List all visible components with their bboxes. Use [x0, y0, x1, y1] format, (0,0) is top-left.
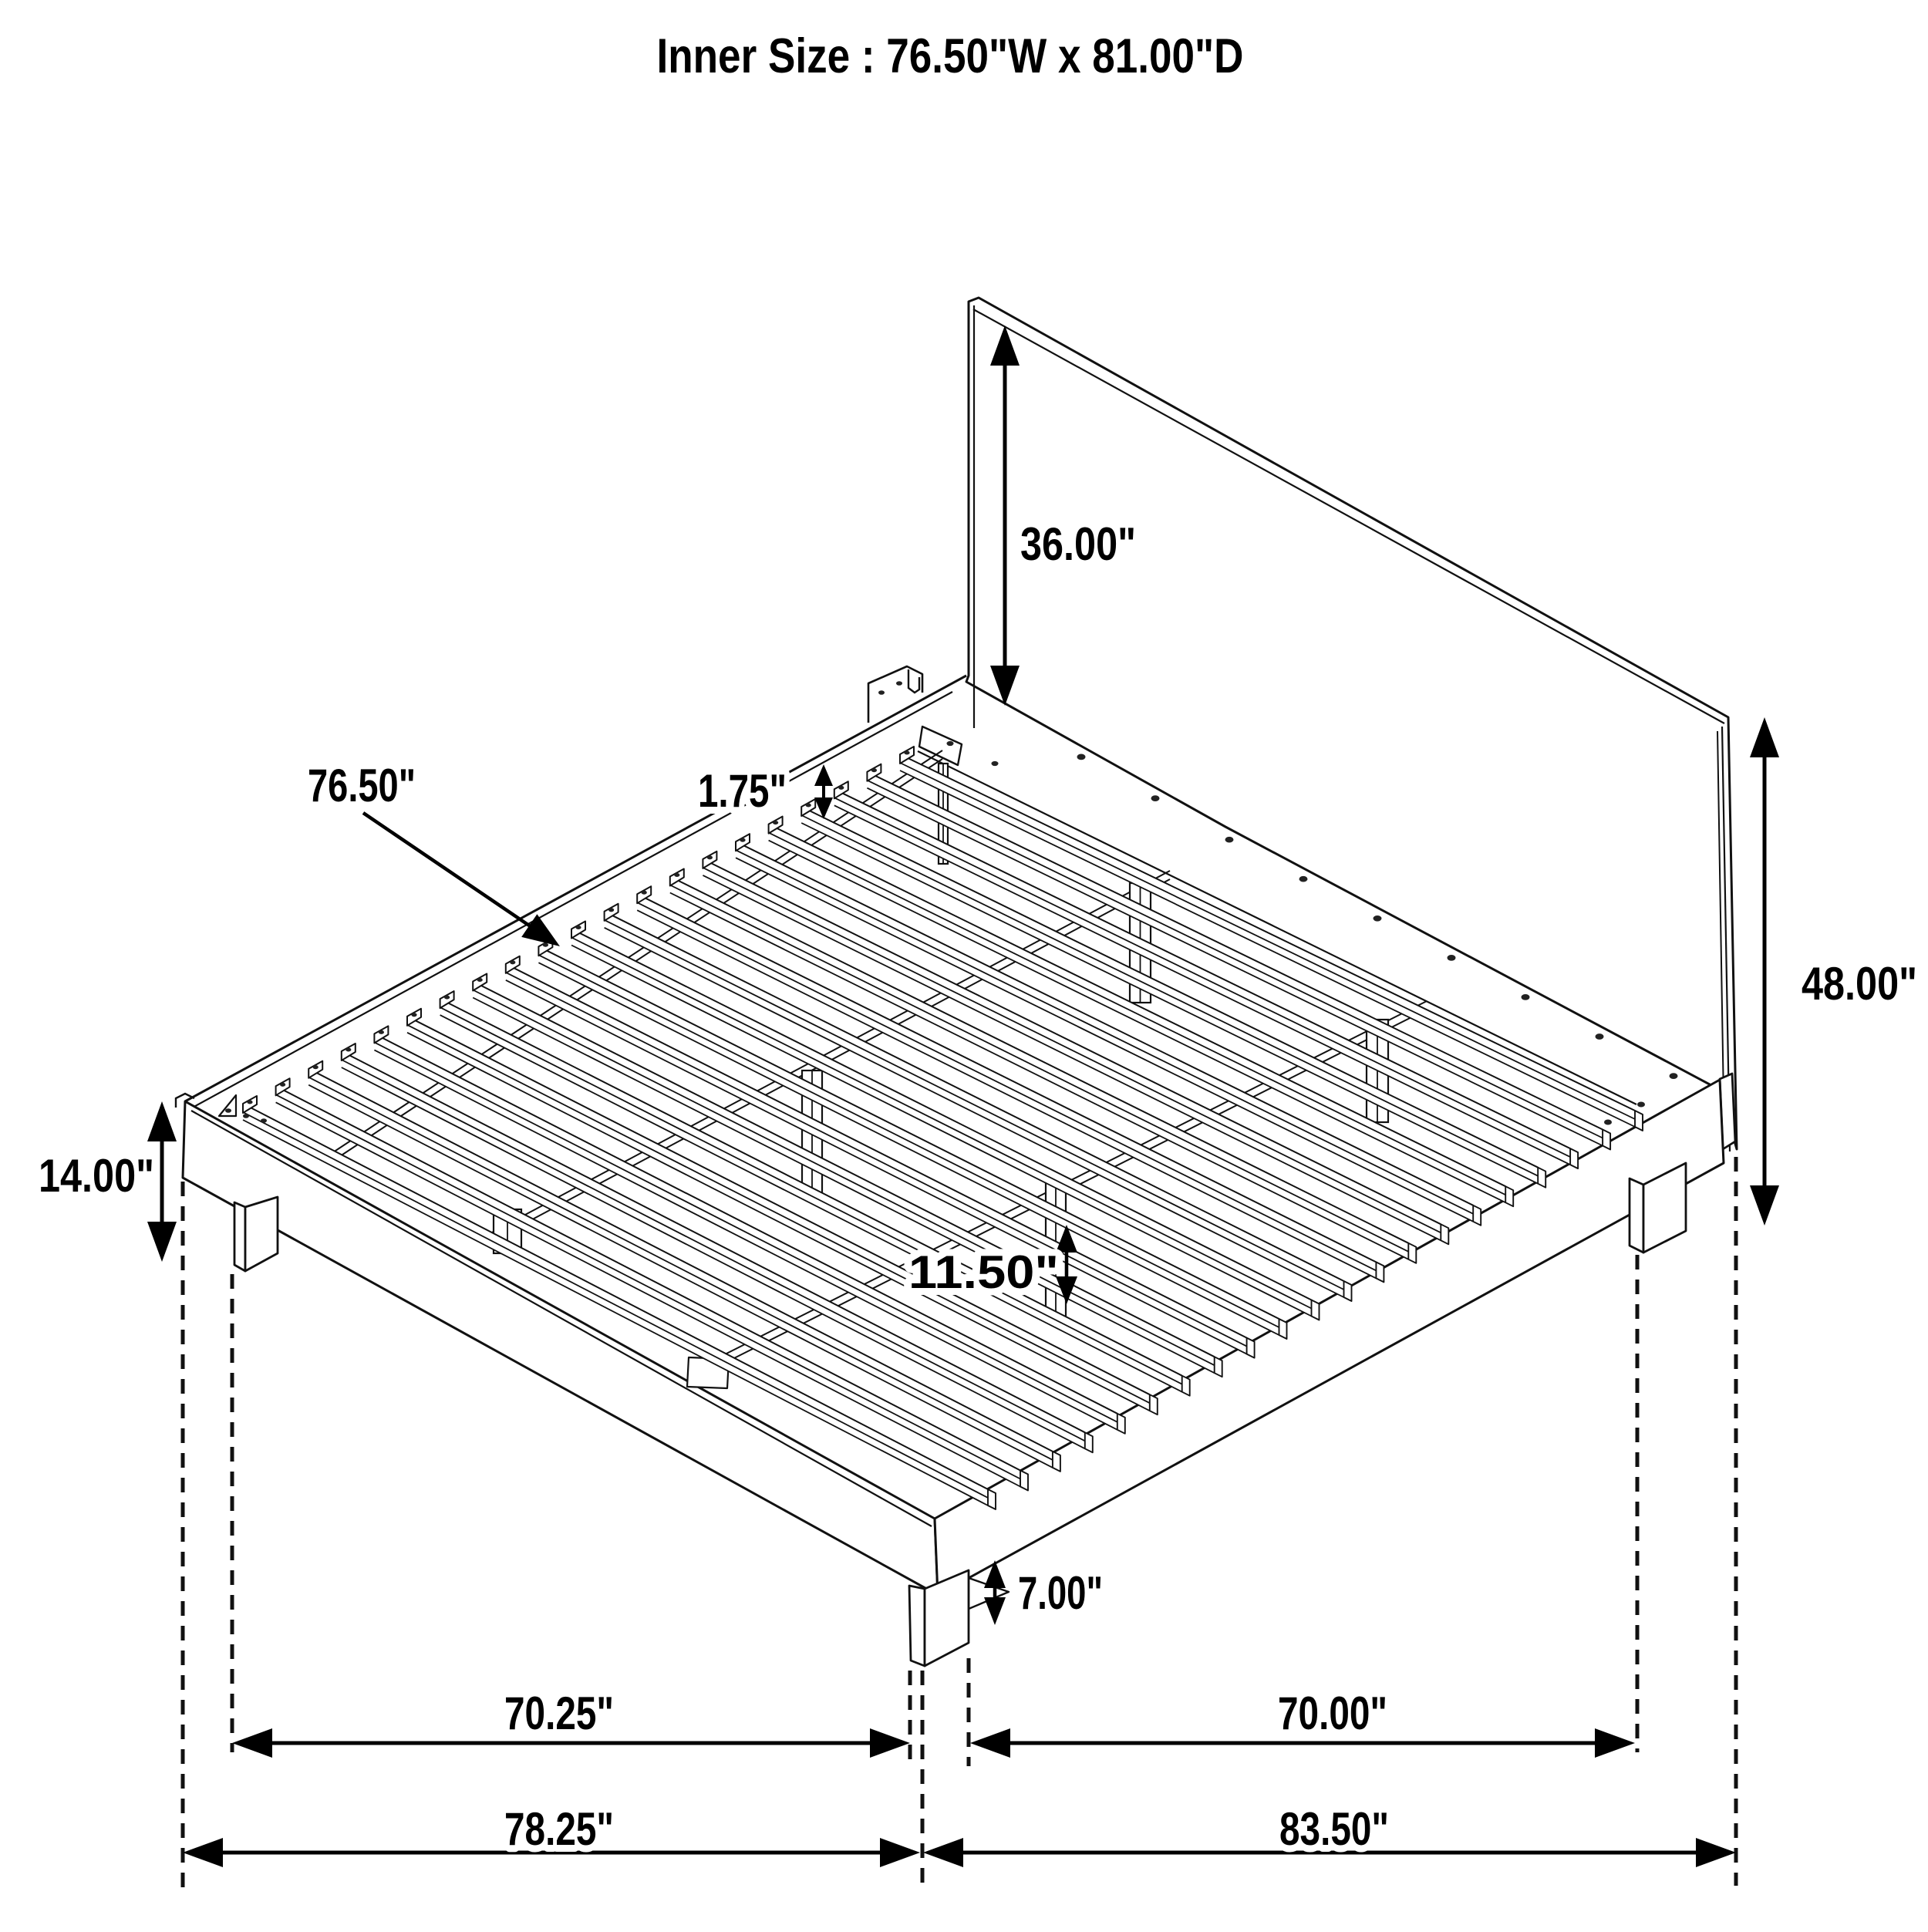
svg-text:7.00": 7.00" [1018, 1567, 1103, 1619]
svg-text:76.50": 76.50" [308, 760, 416, 811]
svg-text:36.00": 36.00" [1020, 518, 1136, 570]
svg-text:78.25": 78.25" [504, 1803, 614, 1855]
svg-text:11.50": 11.50" [908, 1246, 1059, 1298]
svg-text:70.00": 70.00" [1278, 1688, 1387, 1739]
svg-text:83.50": 83.50" [1279, 1803, 1389, 1855]
svg-text:48.00": 48.00" [1802, 958, 1917, 1010]
svg-text:70.25": 70.25" [504, 1688, 614, 1739]
svg-text:14.00": 14.00" [39, 1150, 154, 1202]
svg-text:1.75": 1.75" [698, 765, 787, 817]
svg-text:Inner Size : 76.50"W x 81.00"D: Inner Size : 76.50"W x 81.00"D [657, 29, 1244, 83]
